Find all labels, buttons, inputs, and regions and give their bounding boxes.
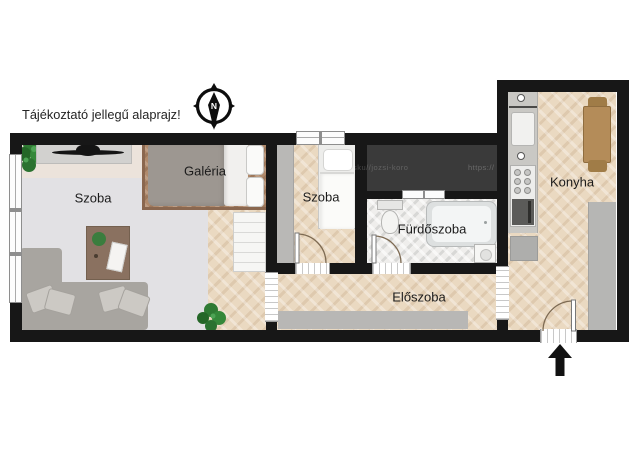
plan-title: Tájékoztató jellegű alaprajz! <box>22 107 181 122</box>
bathroom-sink <box>474 244 496 263</box>
burner <box>514 187 521 194</box>
dining-table <box>583 106 611 163</box>
stairs <box>233 212 266 272</box>
toilet-tank <box>377 200 403 210</box>
faucet-dot <box>517 152 525 160</box>
table-papers <box>106 242 127 273</box>
bathroom-door <box>371 233 411 275</box>
watermark: https:// <box>468 163 495 172</box>
counter-divider <box>509 106 537 108</box>
window-mullion <box>10 208 21 212</box>
room-label-galeria: Galéria <box>184 164 226 179</box>
burner <box>524 169 531 176</box>
bathtub-drain <box>484 221 487 224</box>
burner <box>514 169 521 176</box>
kitchen-cabinet-small <box>510 236 538 261</box>
kitchen-cabinet-tall <box>588 202 616 330</box>
living-hall-passage <box>265 272 278 322</box>
stove <box>510 165 536 227</box>
floor-plan: w.ocsku//jozsi-koro https:// Szoba Galér… <box>0 0 636 450</box>
window-bathroom <box>402 190 445 199</box>
toilet-bowl <box>381 210 399 234</box>
window-bedroom <box>296 131 345 145</box>
dining-chair <box>588 160 607 172</box>
room-label-kitchen: Konyha <box>550 175 594 190</box>
compass-north-label: N <box>211 101 217 111</box>
galeria-bed-pillow <box>246 145 264 175</box>
galeria-bed-pillow <box>246 177 264 207</box>
window-mullion <box>10 252 21 256</box>
entrance-arrow-icon <box>547 343 573 377</box>
room-label-living: Szoba <box>75 191 112 206</box>
burner <box>524 178 531 185</box>
window-mullion <box>423 191 425 198</box>
compass-icon: N <box>188 78 240 136</box>
oven-handle <box>528 201 531 223</box>
wall-right <box>617 80 629 342</box>
window-mullion <box>319 132 322 144</box>
window-left <box>9 154 22 303</box>
table-dot <box>94 254 98 258</box>
wall-top <box>10 133 508 145</box>
kitchen-passage <box>496 266 509 320</box>
wall-bottom <box>10 330 629 342</box>
room-label-bedroom: Szoba <box>303 190 340 205</box>
wall-kitchen-top <box>497 80 629 92</box>
faucet-dot <box>517 94 525 102</box>
bedroom-wardrobe <box>277 145 294 263</box>
plant-icon <box>194 300 228 334</box>
table-plant-icon <box>92 232 106 246</box>
sink-basin <box>480 249 492 261</box>
kitchen-sink <box>511 112 535 146</box>
room-label-bathroom: Fürdőszoba <box>398 222 467 237</box>
burner <box>524 187 531 194</box>
tv-icon-center <box>76 144 100 156</box>
entrance-door <box>540 298 578 334</box>
hallway-mat <box>278 311 468 329</box>
room-label-hallway: Előszoba <box>392 290 445 305</box>
galeria-bed-sheet <box>224 142 248 206</box>
watermark: w.ocsku//jozsi-koro <box>336 163 408 172</box>
window-mullion <box>15 155 16 302</box>
burner <box>514 178 521 185</box>
bedroom-door <box>294 231 334 275</box>
coffee-table <box>86 226 130 280</box>
